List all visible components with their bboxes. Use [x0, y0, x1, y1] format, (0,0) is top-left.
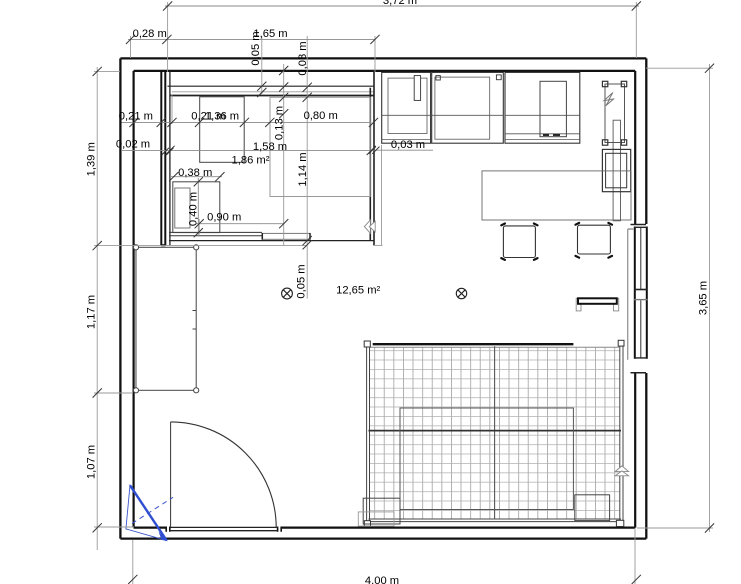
svg-text:0,05 m: 0,05 m [296, 264, 308, 298]
svg-text:1,14 m: 1,14 m [297, 152, 309, 186]
svg-text:0,28 m: 0,28 m [133, 28, 167, 40]
svg-text:0,13 m: 0,13 m [273, 106, 285, 140]
svg-text:0,03 m: 0,03 m [391, 139, 425, 151]
svg-text:1,58 m: 1,58 m [253, 141, 287, 153]
svg-text:4,00 m: 4,00 m [365, 575, 399, 584]
svg-text:3,72 m: 3,72 m [383, 0, 417, 7]
svg-text:0,21 m: 0,21 m [119, 110, 153, 122]
svg-text:1,39 m: 1,39 m [86, 142, 98, 176]
svg-text:0,80 m: 0,80 m [304, 110, 338, 122]
svg-text:12,65 m²: 12,65 m² [336, 285, 380, 297]
svg-text:1,17 m: 1,17 m [85, 295, 97, 329]
svg-text:3,65 m: 3,65 m [697, 281, 709, 315]
svg-text:0,02 m: 0,02 m [116, 138, 150, 150]
svg-text:0,40 m: 0,40 m [188, 192, 200, 226]
svg-text:0,38 m: 0,38 m [178, 167, 212, 179]
svg-text:1,36 m: 1,36 m [205, 110, 239, 122]
svg-text:0,05 m: 0,05 m [250, 31, 262, 65]
svg-text:0,90 m: 0,90 m [207, 212, 241, 224]
svg-text:1,07 m: 1,07 m [85, 445, 97, 479]
svg-text:1,86 m²: 1,86 m² [232, 154, 270, 166]
svg-text:0,08 m: 0,08 m [297, 41, 309, 75]
